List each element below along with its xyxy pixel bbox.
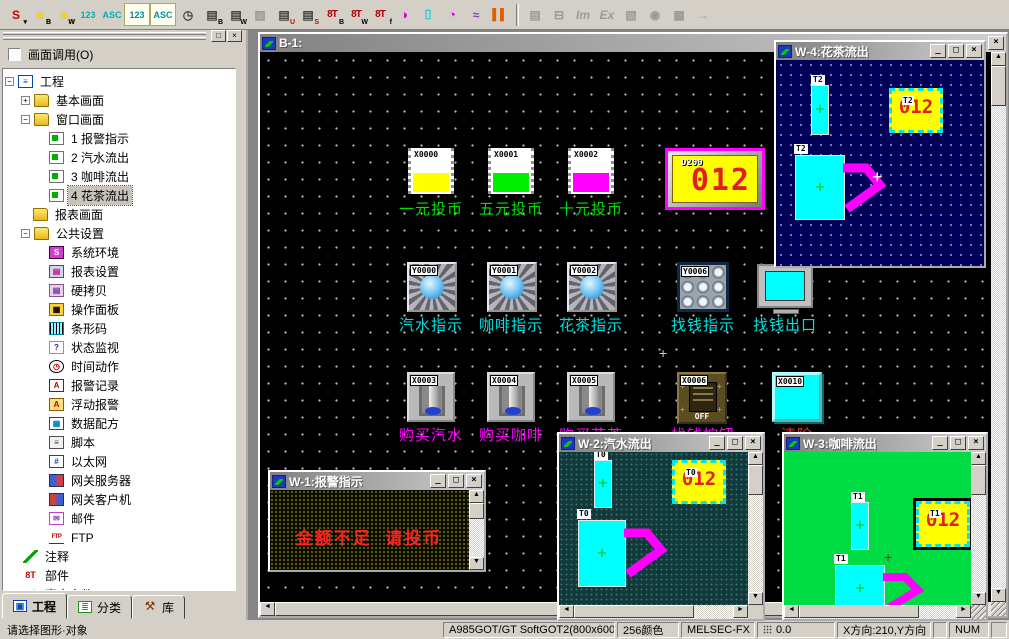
ethernet-icon: # (49, 455, 64, 468)
outlet-label: 找钱出口 (745, 314, 825, 335)
collapse-icon[interactable]: − (21, 115, 30, 124)
w3-titlebar[interactable]: W-3:咖啡流出 _ □ × (784, 434, 986, 452)
device-tag: T2 (902, 96, 914, 105)
screen-icon (49, 189, 64, 202)
w4-display[interactable]: T2 012 (889, 88, 943, 133)
mdi-workspace: B-1: × X0000 X0001 X0002 一元投币 五元投币 十元投币 (248, 30, 1009, 621)
device-tag: Y0006 (681, 266, 709, 277)
scroll-up-button[interactable]: ▲ (991, 52, 1006, 66)
parts-display-icon[interactable]: ▨ (248, 3, 272, 26)
alarm-history-bit-icon[interactable]: 8TB (320, 3, 344, 26)
scroll-thumb[interactable] (971, 465, 986, 495)
display-value: 012 (691, 166, 751, 196)
crosshair-marker: + (884, 550, 892, 564)
close-button[interactable]: × (745, 436, 761, 450)
tab-library[interactable]: ⚒库 (132, 595, 185, 619)
w4-tank[interactable]: T2+ (811, 85, 829, 135)
hardcopy-icon: ▤ (49, 284, 64, 297)
switch-x0003[interactable]: X0003 (407, 372, 455, 422)
lamp-y0000[interactable]: Y0000 (407, 262, 457, 312)
device-tag: X0000 (413, 150, 439, 159)
maximize-button[interactable]: □ (727, 436, 743, 450)
minimize-button[interactable]: _ (430, 474, 446, 488)
fill-pattern-icon[interactable]: ▦ (667, 3, 691, 26)
tree-item-barcode[interactable]: 条形码 (3, 319, 235, 338)
tree-item-float-alarm[interactable]: A浮动报警 (3, 395, 235, 414)
collapse-icon[interactable]: − (5, 77, 14, 86)
lamp-y0001[interactable]: Y0001 (487, 262, 537, 312)
scroll-thumb[interactable] (991, 66, 1006, 106)
numeric-display-icon[interactable]: 123 (76, 3, 100, 26)
w2-cup[interactable]: T0 + (578, 520, 626, 587)
coin-label-5yuan: 五元投币 (471, 198, 551, 219)
clear-button-x0010[interactable]: X0010 (772, 372, 822, 422)
window-w4[interactable]: W-4:花茶流出 _ □ × T2+ T2 012 T2 + + (774, 40, 986, 268)
status-empty-1 (933, 622, 947, 638)
change-outlet-monitor[interactable] (757, 264, 813, 308)
tree-item-time-action[interactable]: ◷时间动作 (3, 357, 235, 376)
status-num-lock: NUM (949, 622, 989, 638)
data-recipe-icon: ▦ (49, 417, 64, 430)
project-workspace-panel: □ × 画面调用(O) −≡工程 +基本画面 −窗口画面 1 报警指示 2 汽水… (0, 30, 248, 621)
tab-category[interactable]: ≣分类 (67, 595, 132, 619)
find-icon[interactable]: ◉ (643, 3, 667, 26)
got-screen-icon (272, 475, 286, 488)
screen-call-checkbox[interactable] (8, 48, 21, 61)
maximize-button[interactable]: □ (448, 474, 464, 488)
device-tag: X0004 (490, 375, 518, 386)
project-tree: −≡工程 +基本画面 −窗口画面 1 报警指示 2 汽水流出 3 咖啡流出 4 … (2, 68, 236, 591)
lamp-label-soda: 汽水指示 (391, 314, 471, 335)
device-tag: T0 (577, 509, 591, 519)
w1-titlebar[interactable]: W-1:报警指示 _ □ × (270, 472, 484, 490)
minimize-button[interactable]: _ (709, 436, 725, 450)
time-action-icon: ◷ (49, 360, 64, 373)
coin-button-x0000[interactable]: X0000 (408, 148, 454, 194)
device-tag: T1 (929, 509, 941, 518)
user-alarm-icon[interactable]: ▤U (272, 3, 296, 26)
outline-view-icon[interactable]: ⊟ (547, 3, 571, 26)
tree-item-common-settings[interactable]: −公共设置 (3, 224, 235, 243)
tree-item-sound-file[interactable]: ◀声音文件 (3, 585, 235, 591)
tree-item-screen-3[interactable]: 3 咖啡流出 (3, 167, 235, 186)
tree-item-screen-1[interactable]: 1 报警指示 (3, 129, 235, 148)
tree-item-base-screens[interactable]: +基本画面 (3, 91, 235, 110)
got-screen-icon (786, 437, 800, 450)
maximize-button[interactable]: □ (948, 44, 964, 58)
coin-label-1yuan: 一元投币 (391, 198, 471, 219)
scroll-down-button[interactable]: ▼ (469, 557, 484, 570)
category-tab-icon: ≣ (78, 601, 92, 613)
cup-handle (622, 524, 668, 584)
w2-titlebar[interactable]: W-2:汽水流出 _ □ × (559, 434, 763, 452)
script-icon: ≡ (49, 436, 64, 449)
amount-display-d200[interactable]: D200 012 (665, 148, 765, 210)
scroll-down-button[interactable]: ▼ (748, 592, 763, 605)
barcode-icon (49, 322, 64, 335)
lamp-y0002[interactable]: Y0002 (567, 262, 617, 312)
cursor-crosshair: + (872, 168, 883, 186)
w4-titlebar[interactable]: W-4:花茶流出 _ □ × (776, 42, 984, 60)
bit-lamp-icon[interactable]: ●B (28, 3, 52, 26)
level-display-icon[interactable]: ⌷ (416, 3, 440, 26)
lamp-label-coffee: 咖啡指示 (471, 314, 551, 335)
ascii-input-icon[interactable]: ASC (150, 3, 176, 26)
w3-tank[interactable]: T1+ (851, 502, 869, 550)
switch-x0004[interactable]: X0004 (487, 372, 535, 422)
close-button[interactable]: × (466, 474, 482, 488)
w4-title: W-4:花茶流出 (795, 43, 869, 60)
crosshair-marker: + (659, 346, 667, 360)
minimize-button[interactable]: _ (932, 436, 948, 450)
got-screen-icon (561, 437, 575, 450)
w4-canvas[interactable]: T2+ T2 012 T2 + + (776, 60, 984, 266)
monitor-screen (765, 271, 805, 301)
operation-panel-icon: ▦ (49, 303, 64, 316)
w3-cup[interactable]: T1 + (835, 565, 885, 605)
display-value: 012 (919, 511, 967, 530)
clock-display-icon[interactable]: ◷ (176, 3, 200, 26)
status-hint: 请选择图形·对象 (2, 622, 441, 638)
screen-image-icon[interactable]: ▧ (619, 3, 643, 26)
device-tag: T1 (834, 554, 848, 564)
collapse-icon[interactable]: − (21, 229, 30, 238)
w3-horizontal-scrollbar[interactable]: ◄ ► (784, 605, 971, 619)
minimize-button[interactable]: _ (930, 44, 946, 58)
status-gt-type: A985GOT/GT SoftGOT2(800x600) (443, 622, 615, 638)
tree-item-gateway-client[interactable]: 网关客户机 (3, 490, 235, 509)
device-tag: X0010 (776, 376, 804, 387)
screen-icon (49, 151, 64, 164)
cup-handle (881, 569, 927, 605)
maximize-button[interactable]: □ (950, 436, 966, 450)
status-empty-2 (991, 622, 1007, 638)
tree-item-script[interactable]: ≡脚本 (3, 433, 235, 452)
export-icon[interactable]: Ex (595, 3, 619, 26)
device-tag: T2 (811, 75, 825, 85)
device-tag: X0003 (410, 375, 438, 386)
coin-fill-green (493, 173, 529, 192)
alarm-record-icon: A (49, 379, 64, 392)
tree-item-comment[interactable]: 注释 (3, 547, 235, 566)
word-lamp-icon[interactable]: ●W (52, 3, 76, 26)
status-colors: 256颜色 (617, 622, 679, 638)
got-screen-icon (778, 45, 792, 58)
word-comment-icon[interactable]: ▤W (224, 3, 248, 26)
grid-icon (763, 625, 772, 634)
window-w3[interactable]: W-3:咖啡流出 _ □ × T1+ T1 012 + T1 + ▲ (782, 432, 988, 621)
folder-icon (33, 208, 48, 221)
status-bar: 请选择图形·对象 A985GOT/GT SoftGOT2(800x600) 25… (0, 620, 1009, 639)
panel-maximize-button[interactable]: □ (211, 30, 226, 42)
display-face: D200 012 (672, 155, 758, 203)
w3-canvas[interactable]: T1+ T1 012 + T1 + (784, 452, 971, 605)
device-tag: Y0001 (490, 265, 518, 276)
coin-label-10yuan: 十元投币 (551, 198, 631, 219)
w3-title: W-3:咖啡流出 (803, 435, 877, 452)
scroll-up-button[interactable]: ▲ (748, 452, 763, 465)
w1-canvas[interactable]: 金额不足 请投币 ▲ ▼ (270, 490, 484, 570)
coin-button-x0002[interactable]: X0002 (568, 148, 614, 194)
w3-display[interactable]: T1 012 (916, 501, 970, 547)
bit-comment-icon[interactable]: ▤B (200, 3, 224, 26)
status-direction: X方向:210,Y方向 (837, 622, 931, 638)
tree-item-alarm-record[interactable]: A报警记录 (3, 376, 235, 395)
status-plc-type: MELSEC-FX (681, 622, 755, 638)
alarm-history-float-icon[interactable]: 8Tf (368, 3, 392, 26)
system-alarm-icon[interactable]: ▤S (296, 3, 320, 26)
device-tag: Y0002 (570, 265, 598, 276)
workspace-tabs: ▣工程 ≣分类 ⚒库 (0, 593, 185, 619)
w4-cup[interactable]: T2 + (795, 155, 845, 220)
switch-label-coffee: 购买咖啡 (471, 424, 551, 445)
main-toolbar: S▾ ●B ●W 123 ASC 123 ASC ◷ ▤B ▤W ▨ ▤U ▤S… (0, 0, 1009, 30)
status-grid: 0.0 (757, 622, 835, 638)
switch-label-soda: 购买汽水 (391, 424, 471, 445)
lamp-y0006-coin-grid[interactable]: Y0006 (677, 262, 729, 312)
switch-knob (425, 407, 441, 415)
switch-plate (689, 382, 717, 412)
parts-icon: 8T (23, 569, 38, 582)
tree-item-system-env[interactable]: S系统环境 (3, 243, 235, 262)
resize-grip[interactable] (971, 605, 986, 619)
w2-tank[interactable]: T0+ (594, 460, 612, 508)
w2-vertical-scrollbar[interactable]: ▲ ▼ (748, 452, 763, 605)
tree-item-gateway-server[interactable]: 网关服务器 (3, 471, 235, 490)
change-button-x0006[interactable]: X0006 ++ ++ OFF (677, 372, 727, 424)
scroll-right-button[interactable]: ► (733, 605, 748, 618)
coin-fill-yellow (413, 173, 449, 192)
device-tag: X0006 (680, 375, 708, 386)
expand-icon[interactable]: + (21, 96, 30, 105)
folder-icon (34, 94, 49, 107)
scroll-right-button[interactable]: ► (956, 605, 971, 618)
scroll-left-button[interactable]: ◄ (559, 605, 574, 618)
bar-graph-icon[interactable]: ▌▌ (488, 3, 512, 26)
window-w1[interactable]: W-1:报警指示 _ □ × 金额不足 请投币 ▲ ▼ (268, 470, 486, 572)
device-tag: X0001 (493, 150, 519, 159)
numeric-input-icon[interactable]: 123 (124, 3, 150, 26)
tree-item-operation-panel[interactable]: ▦操作面板 (3, 300, 235, 319)
tree-item-hardcopy[interactable]: ▤硬拷贝 (3, 281, 235, 300)
device-tag: T2 (794, 144, 808, 154)
close-button[interactable]: × (966, 44, 982, 58)
tree-item-window-screens[interactable]: −窗口画面 (3, 110, 235, 129)
scroll-thumb[interactable] (574, 605, 694, 618)
trend-graph-icon[interactable]: ≈ (464, 3, 488, 26)
tree-item-status-watch[interactable]: ?状态监视 (3, 338, 235, 357)
alarm-message: 金额不足 请投币 (270, 524, 468, 549)
switch-x0005[interactable]: X0005 (567, 372, 615, 422)
s-mode-dropdown-icon[interactable]: S▾ (4, 3, 28, 26)
tree-item-project[interactable]: −≡工程 (3, 72, 235, 91)
scroll-up-button[interactable]: ▲ (469, 490, 484, 503)
w1-title: W-1:报警指示 (289, 473, 363, 490)
scroll-down-button[interactable]: ▼ (971, 592, 986, 605)
system-env-icon: S (49, 246, 64, 259)
tree-item-ftp[interactable]: FTPFTP (3, 528, 235, 547)
panel-meter-icon[interactable]: ◔ (440, 3, 464, 26)
w2-display[interactable]: T0 012 (672, 460, 726, 504)
tree-item-data-recipe[interactable]: ▦数据配方 (3, 414, 235, 433)
w2-title: W-2:汽水流出 (578, 435, 652, 452)
device-tag: T1 (851, 492, 865, 502)
device-tag: T0 (594, 452, 608, 460)
gateway-client-icon (49, 493, 64, 506)
device-tag: Y0000 (410, 265, 438, 276)
got-screen-icon (262, 37, 276, 50)
toolbar-separator (516, 4, 519, 26)
tree-item-report-settings[interactable]: ▤报表设置 (3, 262, 235, 281)
switch-knob (585, 407, 601, 415)
screen-call-label: 画面调用(O) (28, 46, 93, 63)
gateway-server-icon (49, 474, 64, 487)
device-tag: T0 (685, 468, 697, 477)
tree-item-report-screens[interactable]: 报表画面 (3, 205, 235, 224)
speaker-icon: ◀ (23, 588, 38, 591)
scroll-thumb[interactable] (469, 503, 484, 519)
window-w2[interactable]: W-2:汽水流出 _ □ × T0+ T0 012 T0 + ▲ (557, 432, 765, 621)
pen-icon (23, 550, 38, 563)
project-tab-icon: ▣ (13, 600, 27, 612)
ftp-icon: FTP (49, 531, 64, 544)
display-value: 012 (675, 470, 723, 489)
panel-grip[interactable]: □ × (0, 30, 246, 43)
w2-canvas[interactable]: T0+ T0 012 T0 + (559, 452, 748, 605)
tree-item-mail[interactable]: ✉邮件 (3, 509, 235, 528)
folder-icon (34, 227, 49, 240)
close-button[interactable]: × (968, 436, 984, 450)
b1-title: B-1: (279, 36, 302, 50)
scroll-thumb[interactable] (799, 605, 919, 618)
panel-close-button[interactable]: × (227, 30, 242, 42)
device-tag: X0005 (570, 375, 598, 386)
new-screen-icon[interactable]: ▤ (523, 3, 547, 26)
b1-vertical-scrollbar[interactable]: ▲ ▼ (991, 52, 1006, 602)
scroll-left-button[interactable]: ◄ (260, 602, 275, 616)
mail-icon: ✉ (49, 512, 64, 525)
close-button[interactable]: × (988, 36, 1004, 50)
report-settings-icon: ▤ (49, 265, 64, 278)
coin-button-x0001[interactable]: X0001 (488, 148, 534, 194)
screen-icon (49, 170, 64, 183)
folder-icon (34, 113, 49, 126)
scroll-thumb[interactable] (748, 465, 763, 495)
tree-item-parts[interactable]: 8T部件 (3, 566, 235, 585)
import-icon[interactable]: Im (571, 3, 595, 26)
scroll-up-button[interactable]: ▲ (971, 452, 986, 465)
switch-knob (505, 407, 521, 415)
tree-item-screen-2[interactable]: 2 汽水流出 (3, 148, 235, 167)
status-watch-icon: ? (49, 341, 64, 354)
scroll-left-button[interactable]: ◄ (784, 605, 799, 618)
lamp-label-change: 找钱指示 (663, 314, 743, 335)
float-alarm-icon: A (49, 398, 64, 411)
display-value: 012 (892, 98, 940, 117)
tree-item-screen-4-selected[interactable]: 4 花茶流出 (3, 186, 235, 205)
scroll-down-button[interactable]: ▼ (991, 588, 1006, 602)
resize-grip[interactable] (991, 602, 1006, 616)
project-icon: ≡ (18, 75, 33, 88)
library-tab-icon: ⚒ (143, 601, 157, 613)
screen-icon (49, 132, 64, 145)
next-window-icon[interactable]: → (691, 3, 715, 26)
pie-graph-icon[interactable]: ◑ (392, 3, 416, 26)
device-tag: X0002 (573, 150, 599, 159)
w1-vertical-scrollbar[interactable]: ▲ ▼ (469, 490, 484, 570)
ascii-display-icon[interactable]: ASC (100, 3, 124, 26)
switch-state: OFF (679, 412, 725, 421)
tree-item-ethernet[interactable]: #以太网 (3, 452, 235, 471)
w3-vertical-scrollbar[interactable]: ▲ ▼ (971, 452, 986, 605)
coin-fill-magenta (573, 173, 609, 192)
w2-horizontal-scrollbar[interactable]: ◄ ► (559, 605, 748, 619)
tab-project[interactable]: ▣工程 (2, 593, 67, 619)
alarm-history-word-icon[interactable]: 8TW (344, 3, 368, 26)
lamp-label-tea: 花茶指示 (551, 314, 631, 335)
